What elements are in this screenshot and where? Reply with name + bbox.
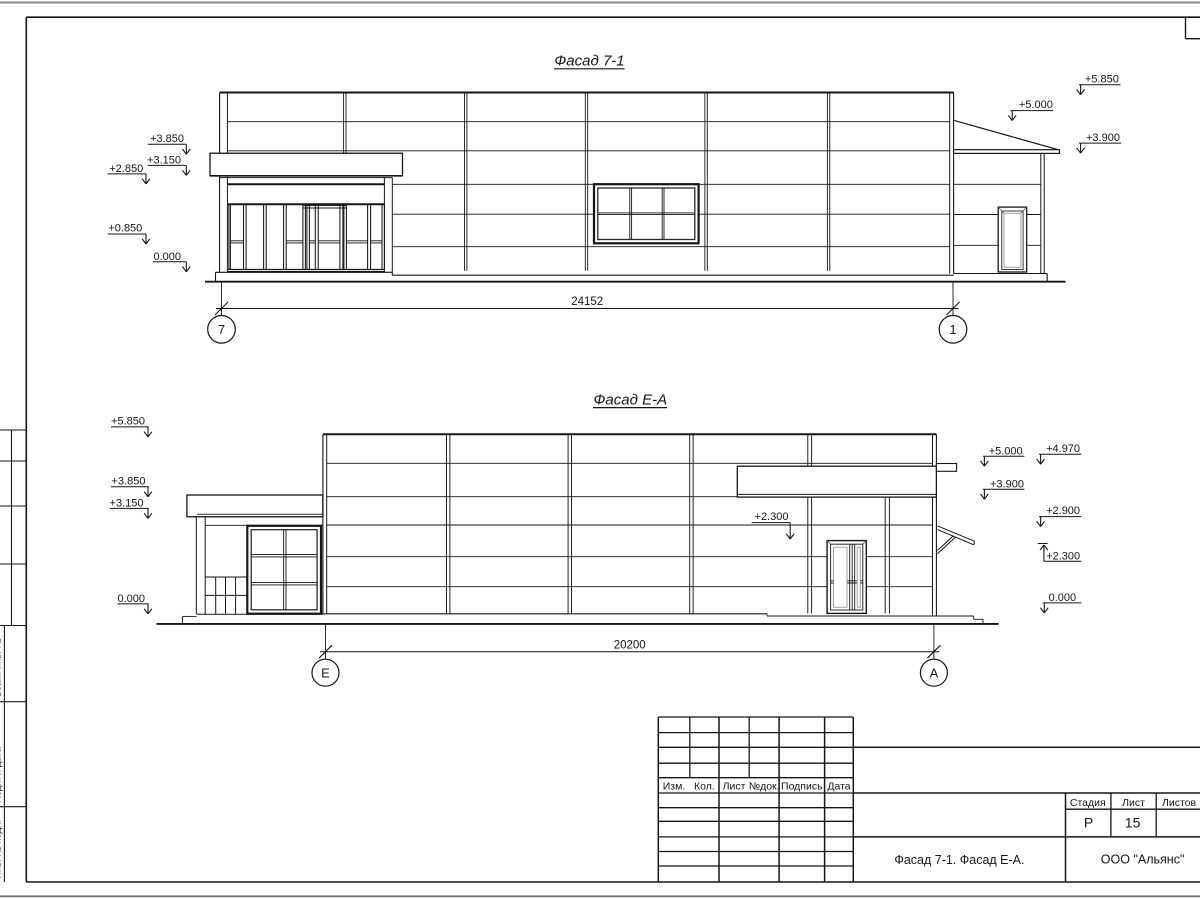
- svg-text:+0.850: +0.850: [108, 223, 142, 235]
- svg-text:20200: 20200: [614, 639, 646, 651]
- svg-text:0.000: 0.000: [117, 593, 145, 605]
- svg-text:Подпись: Подпись: [781, 781, 823, 793]
- svg-text:ООО "Альянс": ООО "Альянс": [1101, 852, 1185, 866]
- svg-text:15: 15: [1125, 815, 1141, 831]
- svg-text:+3.900: +3.900: [990, 478, 1024, 490]
- svg-text:№док.: №док.: [749, 781, 780, 793]
- svg-text:+5.850: +5.850: [1085, 74, 1119, 86]
- svg-text:Взам. инв. №: Взам. инв. №: [0, 638, 3, 697]
- svg-text:Кол.: Кол.: [694, 781, 715, 793]
- svg-text:Лист: Лист: [1122, 797, 1145, 809]
- svg-text:+4.970: +4.970: [1046, 443, 1080, 455]
- svg-text:Стадия: Стадия: [1070, 797, 1106, 809]
- svg-text:Лист: Лист: [723, 781, 746, 793]
- svg-text:+3.900: +3.900: [1086, 132, 1120, 144]
- svg-text:+3.150: +3.150: [110, 498, 144, 510]
- svg-text:А: А: [930, 666, 939, 681]
- svg-text:7: 7: [218, 322, 225, 337]
- svg-text:0.000: 0.000: [1049, 592, 1077, 604]
- svg-text:+3.150: +3.150: [147, 154, 181, 166]
- svg-text:24152: 24152: [571, 296, 603, 308]
- svg-text:Изм.: Изм.: [663, 781, 686, 793]
- svg-text:Фасад Е-А: Фасад Е-А: [594, 391, 668, 408]
- svg-text:Дата: Дата: [827, 781, 850, 793]
- svg-text:0.000: 0.000: [153, 251, 181, 263]
- svg-text:1: 1: [949, 322, 956, 337]
- svg-text:+5.850: +5.850: [111, 416, 145, 428]
- svg-text:Листов: Листов: [1162, 797, 1197, 809]
- svg-text:Р: Р: [1084, 815, 1093, 831]
- svg-text:+2.850: +2.850: [109, 163, 143, 175]
- svg-text:+5.000: +5.000: [1019, 99, 1053, 111]
- svg-text:+2.300: +2.300: [1046, 550, 1080, 562]
- svg-text:Подп. и дата: Подп. и дата: [0, 746, 3, 803]
- svg-text:+3.850: +3.850: [150, 133, 184, 145]
- svg-text:+2.300: +2.300: [755, 511, 789, 523]
- svg-text:Е: Е: [321, 666, 330, 681]
- svg-text:+3.850: +3.850: [112, 476, 146, 488]
- svg-text:Фасад 7-1. Фасад Е-А.: Фасад 7-1. Фасад Е-А.: [894, 853, 1024, 867]
- svg-text:+5.000: +5.000: [989, 445, 1023, 457]
- svg-text:Фасад 7-1: Фасад 7-1: [554, 53, 624, 70]
- svg-text:Инв. № подл.: Инв. № подл.: [0, 820, 3, 879]
- svg-text:+2.900: +2.900: [1046, 505, 1080, 517]
